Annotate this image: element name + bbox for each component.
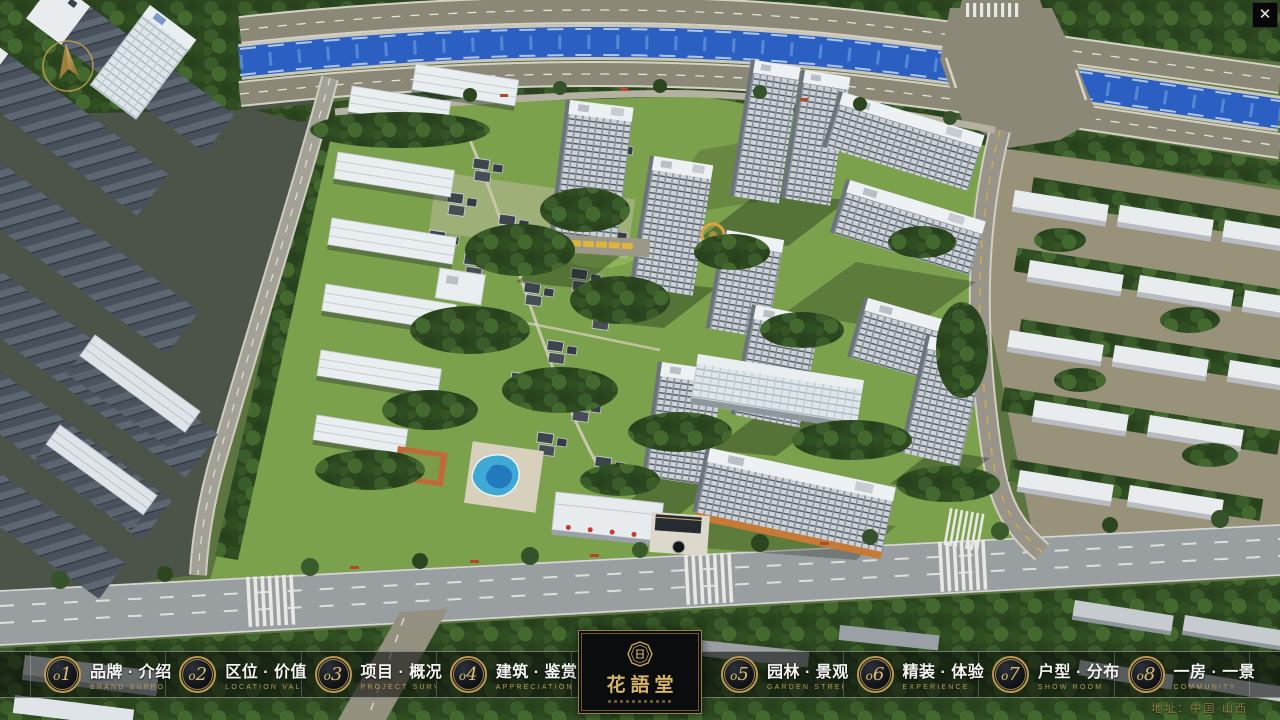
close-icon: ✕ bbox=[1259, 6, 1272, 23]
nav-item-brand-intro[interactable]: o1 品牌 · 介绍 BRAND SUPPORT bbox=[30, 652, 166, 697]
close-button[interactable]: ✕ bbox=[1252, 2, 1278, 28]
number-badge-o8: o8 bbox=[1128, 656, 1165, 693]
nav-caption: SHOW ROOM bbox=[1038, 684, 1114, 691]
nav-caption: APPRECIATION bbox=[496, 684, 571, 691]
nav-label: 品牌 · 介绍 bbox=[90, 658, 165, 682]
project-address: 地址：中国·山西 bbox=[1151, 700, 1248, 716]
navbar-right-spacer bbox=[1250, 652, 1280, 697]
number-badge-o1: o1 bbox=[44, 656, 81, 693]
number-badge-o4: o4 bbox=[450, 656, 487, 693]
nav-group-left: o1 品牌 · 介绍 BRAND SUPPORT o2 区位 · 价值 LOCA… bbox=[30, 652, 572, 697]
swimming-pool bbox=[464, 441, 544, 512]
nav-caption: GARDEN STREET bbox=[767, 684, 843, 691]
project-logo-tagline bbox=[608, 700, 672, 703]
nav-group-right: o5 园林 · 景观 GARDEN STREET o6 精装 · 体验 EXPE… bbox=[708, 652, 1250, 697]
number-badge-o2: o2 bbox=[179, 656, 216, 693]
nav-item-floorplan-distribution[interactable]: o7 户型 · 分布 SHOW ROOM bbox=[979, 652, 1115, 697]
nav-label: 园林 · 景观 bbox=[767, 658, 843, 682]
nav-caption: COMMUNITY bbox=[1174, 684, 1250, 691]
nav-item-architecture-appreciation[interactable]: o4 建筑 · 鉴赏 APPRECIATION bbox=[437, 652, 572, 697]
nav-label: 项目 · 概况 bbox=[361, 658, 436, 682]
number-badge-o6: o6 bbox=[857, 656, 894, 693]
number-badge-o3: o3 bbox=[315, 656, 352, 693]
nav-item-project-overview[interactable]: o3 项目 · 概况 PROJECT SURVEY bbox=[302, 652, 437, 697]
nav-caption: LOCATION VALUE bbox=[225, 684, 300, 691]
compass-north-icon bbox=[38, 36, 98, 96]
number-badge-o5: o5 bbox=[721, 656, 758, 693]
nav-label: 精装 · 体验 bbox=[903, 658, 979, 682]
nav-label: 一房 · 一景 bbox=[1174, 658, 1250, 682]
number-badge-o7: o7 bbox=[992, 656, 1029, 693]
nav-item-garden-landscape[interactable]: o5 园林 · 景观 GARDEN STREET bbox=[708, 652, 844, 697]
navbar-left-spacer bbox=[0, 652, 30, 697]
brand-seal-icon bbox=[627, 641, 653, 667]
nav-label: 建筑 · 鉴赏 bbox=[496, 658, 571, 682]
nav-item-room-view[interactable]: o8 一房 · 一景 COMMUNITY bbox=[1115, 652, 1251, 697]
entrance-gate bbox=[649, 512, 710, 556]
presentation-stage: ✕ o1 品牌 · 介绍 BRAND SUPPORT o2 区位 · 价值 LO… bbox=[0, 0, 1280, 720]
nav-label: 户型 · 分布 bbox=[1038, 658, 1114, 682]
project-logo-title: 花語堂 bbox=[606, 670, 678, 697]
nav-caption: PROJECT SURVEY bbox=[361, 684, 436, 691]
nav-caption: BRAND SUPPORT bbox=[90, 684, 165, 691]
masterplan-3d-map[interactable] bbox=[0, 0, 1280, 720]
nav-caption: EXPERIENCE bbox=[903, 684, 979, 691]
nav-item-location-value[interactable]: o2 区位 · 价值 LOCATION VALUE bbox=[166, 652, 301, 697]
nav-item-interior-experience[interactable]: o6 精装 · 体验 EXPERIENCE bbox=[844, 652, 980, 697]
project-logo-panel[interactable]: 花語堂 bbox=[578, 630, 702, 714]
nav-label: 区位 · 价值 bbox=[225, 658, 300, 682]
